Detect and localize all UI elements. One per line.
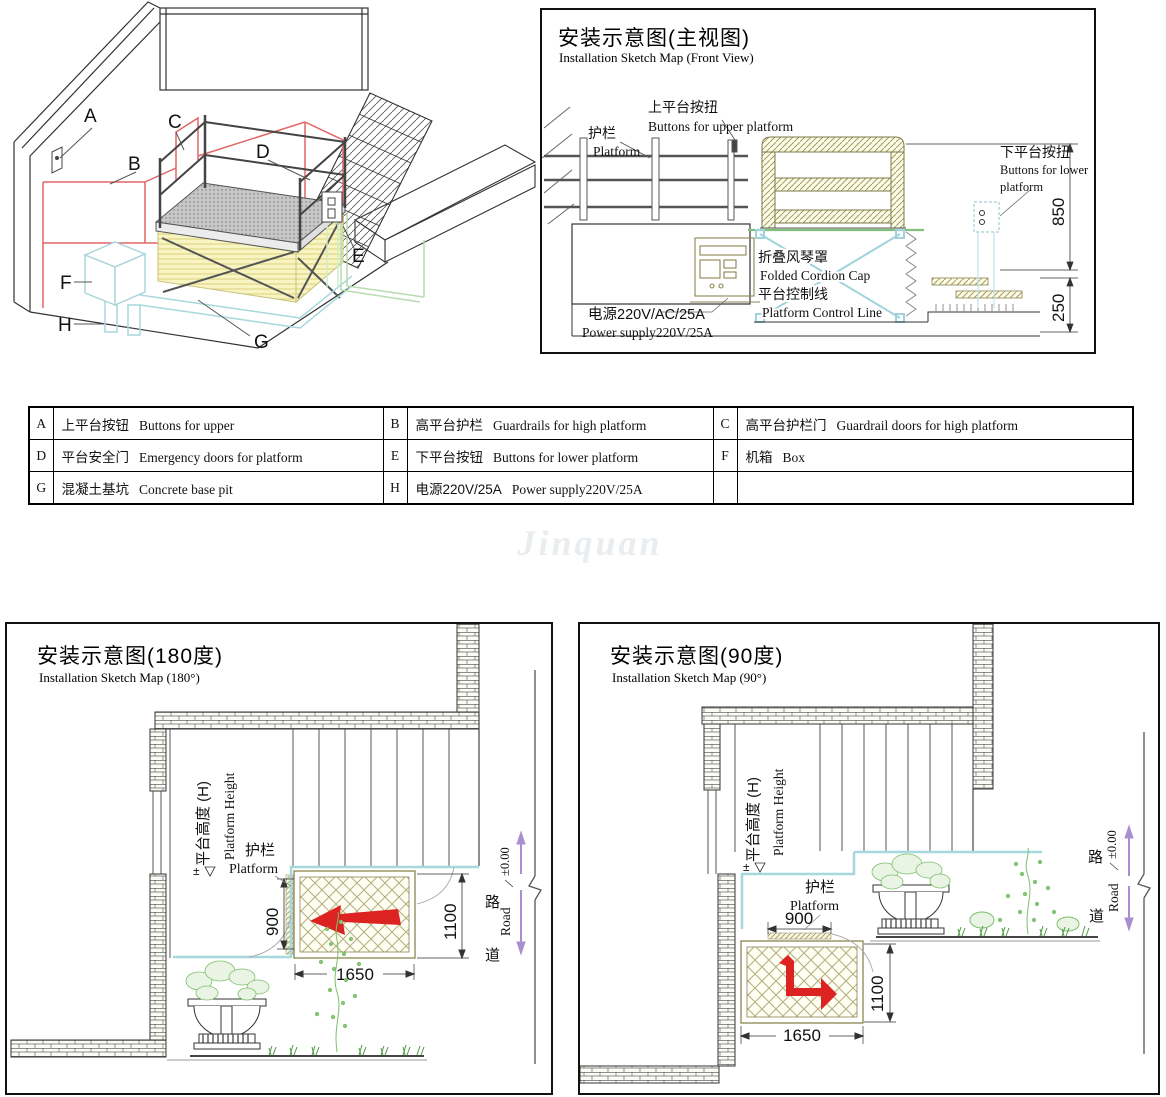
front-cap-label-en: Folded Cordion Cap [760, 268, 870, 283]
plan90-road-zh-bottom: 道 [1089, 908, 1104, 925]
legend-key: F [713, 440, 737, 472]
legend-desc: 混凝土基坑Concrete base pit [53, 472, 383, 505]
legend-desc: 平台安全门Emergency doors for platform [53, 440, 383, 472]
front-left-guardrail [544, 138, 748, 220]
plan90-level-label: ±0.00 [1105, 830, 1119, 859]
front-guardrail-label-zh: 护栏 [588, 125, 616, 141]
iso-label-h: H [58, 315, 72, 336]
plan180-planter [188, 999, 266, 1049]
front-lift-rails [762, 137, 904, 228]
legend-en: Power supply220V/25A [512, 482, 643, 497]
front-right-steps [932, 278, 1022, 311]
legend-en: Box [783, 450, 806, 465]
plan-90-subtitle: Installation Sketch Map (90°) [612, 670, 766, 686]
iso-label-e: E [352, 246, 365, 267]
plan90-guardrail-zh: 护栏 [805, 879, 835, 896]
legend-desc: 下平台按钮Buttons for lower platform [407, 440, 713, 472]
legend-desc: 高平台护栏门Guardrail doors for high platform [737, 407, 1133, 440]
legend-zh: 混凝土基坑 [62, 482, 130, 497]
iso-label-f: F [60, 273, 72, 294]
plan90-level-pm: ± [743, 860, 750, 874]
legend-desc: 电源220V/25APower supply220V/25A [407, 472, 713, 505]
plan180-dim-1650-label: 1650 [336, 965, 374, 984]
plan90-dim-1100-label: 1100 [868, 975, 887, 1012]
front-upper-slab [572, 224, 750, 304]
legend-desc [737, 472, 1133, 505]
plan180-planter-foliage [186, 961, 269, 1000]
plan180-dim-900-label: 900 [263, 908, 282, 936]
iso-machine-box [85, 242, 145, 305]
legend-zh: 电源220V/25A [416, 482, 502, 497]
plan180-level-pm: ± [193, 864, 200, 878]
plan-180-drawing: 900 1100 1650 平台高度 (H) Platform Height ±… [7, 624, 551, 1093]
legend-key: G [29, 472, 53, 505]
plan90-guardrail-en: Platform [790, 899, 839, 914]
legend-zh: 高平台护栏门 [746, 418, 827, 433]
iso-label-d: D [256, 142, 270, 163]
plan90-gate-strip [768, 933, 831, 939]
legend-key: B [383, 407, 407, 440]
iso-label-g: G [254, 332, 269, 353]
plan180-road-en: Road [498, 907, 513, 936]
plan90-height-label-en: Platform Height [771, 768, 786, 856]
front-dim-850-label: 850 [1049, 198, 1068, 226]
front-view-title: 安装示意图(主视图) [558, 22, 750, 52]
legend-en: Buttons for lower platform [493, 450, 638, 465]
legend-en: Guardrail doors for high platform [837, 418, 1018, 433]
legend-desc: 上平台按钮Buttons for upper [53, 407, 383, 440]
plan180-road-zh-bottom: 道 [485, 947, 500, 964]
plan180-road-edge [529, 670, 541, 1064]
legend-zh: 上平台按钮 [62, 418, 130, 433]
plan180-guardrail-zh: 护栏 [245, 842, 275, 859]
plan-180-subtitle: Installation Sketch Map (180°) [39, 670, 200, 686]
iso-upper-button-box [52, 147, 62, 173]
front-upper-button [732, 140, 737, 152]
plan90-planter-foliage [872, 854, 950, 889]
plan180-height-label-zh: 平台高度 (H) [195, 781, 212, 866]
plan180-grass [269, 1045, 424, 1055]
legend-en: Emergency doors for platform [139, 450, 303, 465]
legend-desc: 高平台护栏Guardrails for high platform [407, 407, 713, 440]
legend-zh: 机箱 [746, 450, 773, 465]
plan-180-title: 安装示意图(180度) [37, 640, 223, 670]
plan180-level-label: ±0.00 [498, 847, 512, 876]
front-lower-btn-label-en1: Buttons for lower [1000, 163, 1089, 177]
front-cap-label-zh: 折叠风琴罩 [758, 249, 828, 265]
legend-table: A 上平台按钮Buttons for upper B 高平台护栏Guardrai… [28, 406, 1134, 505]
plan90-height-label-zh: 平台高度 (H) [745, 777, 762, 862]
plan90-road-arrows [1125, 826, 1133, 930]
legend-zh: 高平台护栏 [416, 418, 484, 433]
plan-90-drawing: 900 1100 1650 平台高度 (H) Platform Height ±… [580, 624, 1158, 1093]
iso-label-a: A [84, 106, 97, 127]
legend-zh: 平台安全门 [62, 450, 130, 465]
front-lower-btn-label-zh: 下平台按扭 [1000, 144, 1070, 160]
legend-row: G 混凝土基坑Concrete base pit H 电源220V/25APow… [29, 472, 1133, 505]
legend-en: Guardrails for high platform [493, 418, 646, 433]
plan90-dim-1650-label: 1650 [783, 1026, 821, 1045]
legend: A 上平台按钮Buttons for upper B 高平台护栏Guardrai… [28, 406, 1134, 505]
iso-view-drawing: A B C D E F G H [0, 0, 540, 400]
plan180-level-triangle [205, 867, 215, 876]
iso-label-b: B [128, 154, 141, 175]
legend-key: H [383, 472, 407, 505]
plan90-level-triangle [755, 863, 765, 872]
plan90-planter [873, 885, 949, 934]
iso-lower-button-box [322, 192, 342, 222]
front-dim-250-label: 250 [1049, 294, 1068, 322]
front-lower-btn-label-en2: platform [1000, 180, 1043, 194]
legend-desc: 机箱Box [737, 440, 1133, 472]
front-view-subtitle: Installation Sketch Map (Front View) [559, 50, 754, 66]
watermark: Jinquan [430, 522, 750, 564]
front-power-label-en: Power supply220V/25A [582, 325, 713, 340]
front-guardrail-label-en: Platform [593, 144, 641, 159]
legend-key: D [29, 440, 53, 472]
plan90-platform [741, 941, 863, 1023]
front-power-label-zh: 电源220V/AC/25A [588, 306, 705, 323]
front-view-panel: 安装示意图(主视图) Installation Sketch Map (Fron… [540, 8, 1096, 354]
front-upper-btn-label-zh: 上平台按扭 [648, 99, 718, 115]
page: A B C D E F G H 安装示意图(主视图) Installation … [0, 0, 1166, 1097]
legend-en: Buttons for upper [139, 418, 234, 433]
plan180-guardrail-en: Platform [229, 862, 278, 877]
legend-key: C [713, 407, 737, 440]
legend-key: E [383, 440, 407, 472]
plan-180-panel: 安装示意图(180度) Installation Sketch Map (180… [5, 622, 553, 1095]
plan90-road-zh-top: 路 [1088, 849, 1103, 866]
legend-zh: 下平台按钮 [416, 450, 484, 465]
front-ctrl-label-en: Platform Control Line [762, 305, 882, 320]
plan180-platform [294, 871, 415, 958]
plan-90-title: 安装示意图(90度) [610, 640, 783, 670]
plan180-road-arrows [517, 832, 525, 954]
legend-en: Concrete base pit [139, 482, 233, 497]
iso-label-c: C [168, 112, 182, 133]
plan-90-panel: 安装示意图(90度) Installation Sketch Map (90°)… [578, 622, 1160, 1095]
plan180-dim-1100-label: 1100 [441, 903, 460, 940]
plan180-height-label-en: Platform Height [222, 772, 237, 860]
plan90-road-en: Road [1106, 883, 1121, 912]
legend-row: D 平台安全门Emergency doors for platform E 下平… [29, 440, 1133, 472]
front-upper-btn-label-en: Buttons for upper platform [648, 119, 794, 134]
plan90-vegetation [970, 848, 1079, 934]
legend-row: A 上平台按钮Buttons for upper B 高平台护栏Guardrai… [29, 407, 1133, 440]
front-accordion [906, 232, 916, 316]
legend-key [713, 472, 737, 505]
plan90-road-edge [1138, 732, 1150, 1054]
legend-key: A [29, 407, 53, 440]
front-ctrl-label-zh: 平台控制线 [758, 286, 828, 302]
